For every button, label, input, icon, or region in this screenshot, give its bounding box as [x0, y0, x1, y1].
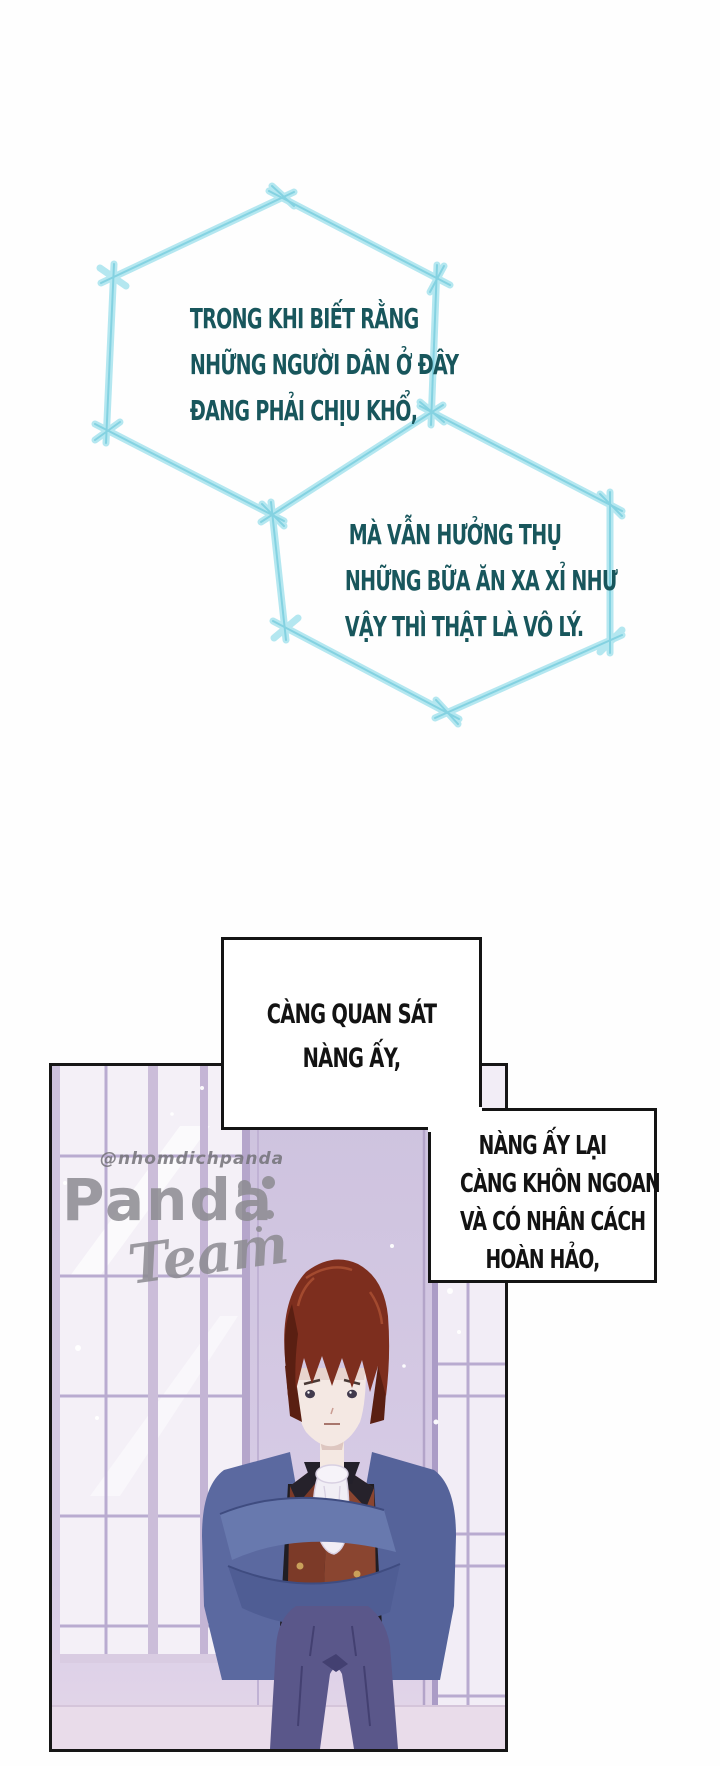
panda-nose-icon [256, 1226, 262, 1232]
panda-ear-icon [262, 1176, 275, 1189]
speech-bubble-hex2: MÀ VẪN HƯỞNG THỤ NHỮNG BỮA ĂN XA XỈ NHƯ … [293, 512, 617, 650]
speech-line: CÀNG QUAN SÁT [258, 993, 446, 1037]
speech-line: NÀNG ẤY, [258, 1037, 446, 1081]
speech-line: ĐANG PHẢI CHỊU KHỔ, [190, 388, 410, 434]
speech-line: HOÀN HẢO, [460, 1241, 625, 1279]
speech-line: NHỮNG BỮA ĂN XA XỈ NHƯ [345, 558, 565, 604]
speech-bubble-rect1-text: CÀNG QUAN SÁT NÀNG ẤY, [221, 993, 482, 1081]
speech-line: VẬY THÌ THẬT LÀ VÔ LÝ. [345, 604, 565, 650]
speech-line: NHỮNG NGƯỜI DÂN Ở ĐÂY [190, 342, 410, 388]
panda-eye-icon [243, 1212, 252, 1221]
speech-bubble-rect2-text: NÀNG ẤY LẠI CÀNG KHÔN NGOAN VÀ CÓ NHÂN C… [428, 1127, 657, 1279]
speech-line: NÀNG ẤY LẠI [460, 1127, 625, 1165]
speech-bubble-hex1: TRONG KHI BIẾT RẰNG NHỮNG NGƯỜI DÂN Ở ĐÂ… [138, 296, 462, 434]
comic-page: { "bubbles": { "hex1": { "lines": ["TRON… [0, 0, 720, 1766]
speech-line: VÀ CÓ NHÂN CÁCH [460, 1203, 625, 1241]
panda-eye-icon [265, 1210, 274, 1219]
speech-line: MÀ VẪN HƯỞNG THỤ [345, 512, 565, 558]
panda-ear-icon [238, 1180, 251, 1193]
speech-line: TRONG KHI BIẾT RẰNG [190, 296, 410, 342]
speech-line: CÀNG KHÔN NGOAN [460, 1165, 625, 1203]
